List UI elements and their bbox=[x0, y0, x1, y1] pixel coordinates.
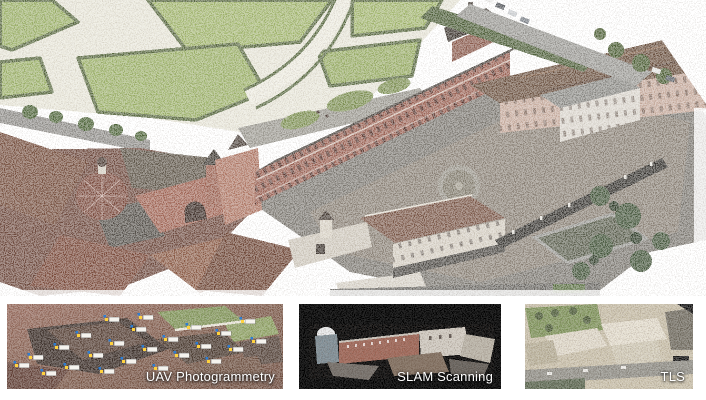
uav-panel-label: UAV Photogrammetry bbox=[146, 369, 275, 384]
main-point-cloud-view bbox=[0, 0, 706, 296]
panel-slam-scanning: SLAM Scanning bbox=[299, 304, 501, 389]
figure-point-cloud-overview: UAV Photogrammetry bbox=[0, 0, 706, 400]
panel-uav-photogrammetry: UAV Photogrammetry bbox=[7, 304, 283, 389]
panel-tls: TLS bbox=[525, 304, 693, 389]
slam-panel-label: SLAM Scanning bbox=[397, 369, 493, 384]
tls-panel-label: TLS bbox=[661, 369, 685, 384]
